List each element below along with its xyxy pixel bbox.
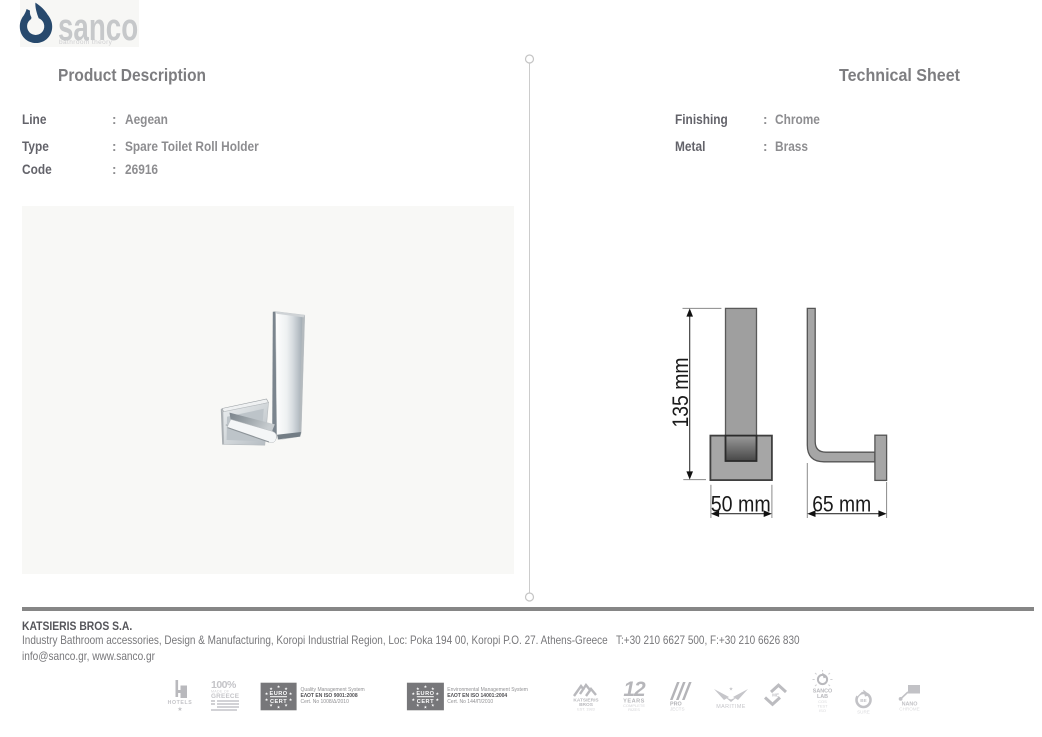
svg-text:EST. 1983: EST. 1983 xyxy=(577,708,595,712)
svg-text:★: ★ xyxy=(277,684,281,689)
svg-text:★: ★ xyxy=(729,687,734,693)
svg-text:BE: BE xyxy=(860,698,866,703)
svg-text:★: ★ xyxy=(265,691,269,696)
svg-text:★: ★ xyxy=(284,703,288,708)
svg-text:EURO: EURO xyxy=(270,691,288,697)
svg-text:★: ★ xyxy=(431,703,435,708)
svg-text:GREECE: GREECE xyxy=(211,693,240,700)
svg-text:JECTS: JECTS xyxy=(670,707,685,712)
svg-text:★: ★ xyxy=(436,697,440,702)
svg-text:★: ★ xyxy=(277,705,281,710)
svg-text:ME: ME xyxy=(772,693,779,698)
svg-text:★: ★ xyxy=(177,706,182,713)
svg-text:★: ★ xyxy=(416,686,420,691)
svg-text:★: ★ xyxy=(269,703,273,708)
svg-text:★: ★ xyxy=(265,697,269,702)
svg-text:★: ★ xyxy=(289,691,293,696)
svg-text:★: ★ xyxy=(289,697,293,702)
svg-text:★: ★ xyxy=(424,684,428,689)
svg-text:★: ★ xyxy=(424,705,428,710)
svg-text:Cert. No 1008/Δ/2010: Cert. No 1008/Δ/2010 xyxy=(301,699,350,705)
svg-text:50 mm: 50 mm xyxy=(711,491,771,516)
svg-text:SURE: SURE xyxy=(857,710,870,715)
svg-text:★: ★ xyxy=(269,686,273,691)
svg-text:Cert. No 144/Π/2010: Cert. No 144/Π/2010 xyxy=(447,699,493,705)
svg-text:★: ★ xyxy=(412,691,416,696)
svg-text:CHROME: CHROME xyxy=(899,707,919,712)
svg-text:ISO: ISO xyxy=(819,708,826,713)
svg-text:★: ★ xyxy=(412,697,416,702)
svg-text:RIZES: RIZES xyxy=(628,707,640,712)
svg-text:★: ★ xyxy=(416,703,420,708)
svg-text:★: ★ xyxy=(431,686,435,691)
svg-text:EURO: EURO xyxy=(416,691,434,697)
svg-text:MARITIME: MARITIME xyxy=(716,704,746,710)
svg-text:★: ★ xyxy=(284,686,288,691)
svg-text:135 mm: 135 mm xyxy=(668,358,693,428)
svg-text:★: ★ xyxy=(436,691,440,696)
svg-text:HOTELS: HOTELS xyxy=(168,700,193,706)
svg-text:65 mm: 65 mm xyxy=(812,491,871,516)
